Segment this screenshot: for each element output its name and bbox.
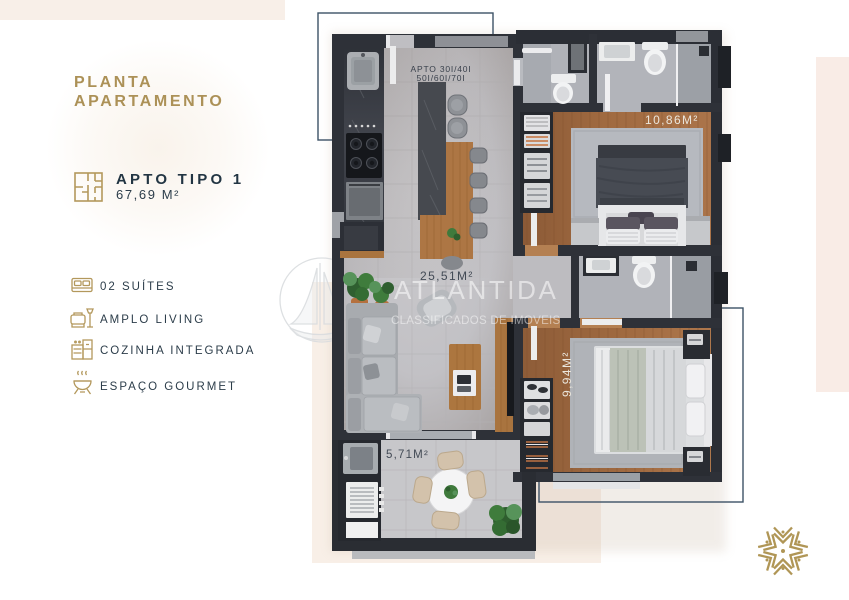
svg-text:APARTAMENTO: APARTAMENTO xyxy=(74,93,224,110)
svg-text:COZINHA INTEGRADA: COZINHA INTEGRADA xyxy=(100,345,255,357)
svg-text:50I/60I/70I: 50I/60I/70I xyxy=(417,73,466,83)
svg-text:AMPLO LIVING: AMPLO LIVING xyxy=(100,314,205,326)
svg-text:ESPAÇO GOURMET: ESPAÇO GOURMET xyxy=(100,381,237,393)
svg-text:PLANTA: PLANTA xyxy=(74,74,153,91)
svg-text:02 SUÍTES: 02 SUÍTES xyxy=(100,280,176,293)
svg-text:9,94M²: 9,94M² xyxy=(560,351,574,397)
svg-text:CLASSIFICADOS DE IMOVEIS: CLASSIFICADOS DE IMOVEIS xyxy=(391,315,561,327)
svg-text:ATLANTIDA: ATLANTIDA xyxy=(394,275,559,305)
svg-text:5,71M²: 5,71M² xyxy=(386,449,429,461)
svg-text:25,51M²: 25,51M² xyxy=(420,269,474,283)
svg-text:APTO TIPO 1: APTO TIPO 1 xyxy=(116,171,244,188)
svg-text:10,86M²: 10,86M² xyxy=(645,113,699,127)
svg-text:67,69 M²: 67,69 M² xyxy=(116,187,180,202)
